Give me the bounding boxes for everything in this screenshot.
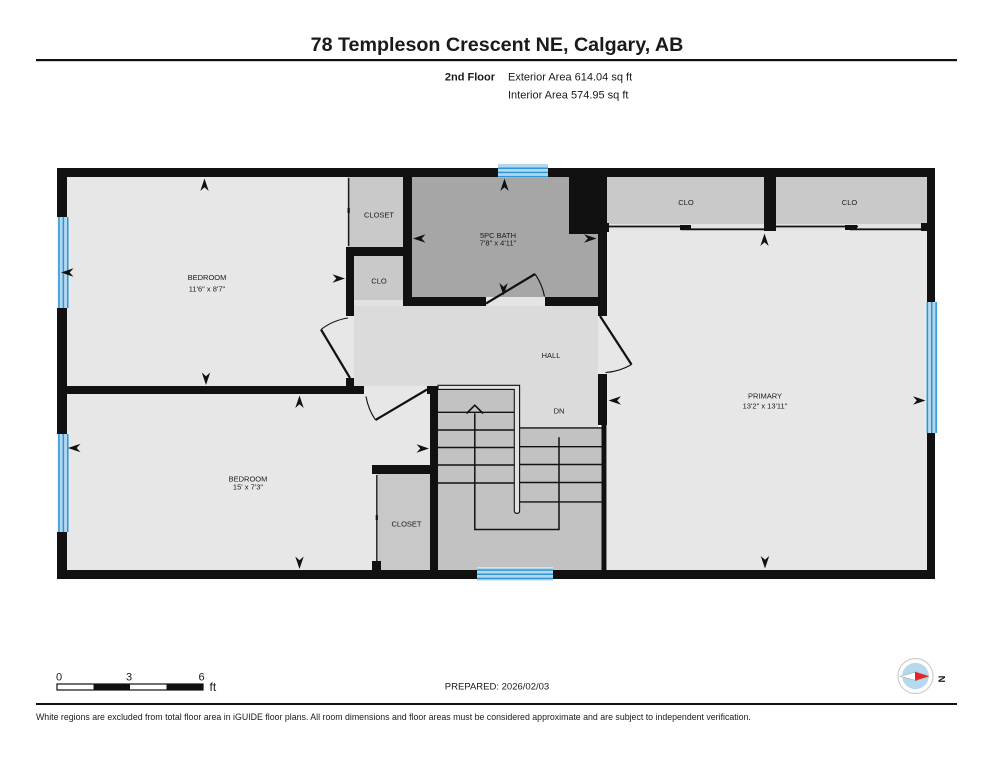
svg-text:ft: ft: [210, 680, 217, 694]
svg-text:CLOSET: CLOSET: [364, 211, 394, 220]
svg-text:7'8" x 4'11": 7'8" x 4'11": [480, 239, 517, 248]
svg-text:PREPARED: 2026/02/03: PREPARED: 2026/02/03: [445, 682, 549, 693]
svg-text:White regions are excluded fro: White regions are excluded from total fl…: [36, 712, 751, 722]
svg-text:DN: DN: [554, 407, 565, 416]
svg-text:PRIMARY: PRIMARY: [748, 392, 782, 401]
svg-text:Exterior Area 614.04 sq ft: Exterior Area 614.04 sq ft: [508, 72, 632, 84]
svg-text:6: 6: [198, 672, 204, 684]
svg-text:CLO: CLO: [371, 277, 387, 286]
svg-text:BEDROOM: BEDROOM: [188, 273, 227, 282]
svg-text:78 Templeson Crescent NE, Calg: 78 Templeson Crescent NE, Calgary, AB: [311, 34, 684, 56]
svg-text:Interior Area 574.95 sq ft: Interior Area 574.95 sq ft: [508, 90, 628, 102]
svg-text:0: 0: [56, 672, 62, 684]
svg-text:15' x 7'3": 15' x 7'3": [233, 483, 263, 492]
svg-text:CLO: CLO: [842, 198, 858, 207]
svg-text:HALL: HALL: [542, 351, 561, 360]
svg-text:N: N: [936, 676, 947, 683]
svg-text:3: 3: [126, 672, 132, 684]
svg-text:CLOSET: CLOSET: [391, 520, 421, 529]
svg-text:CLO: CLO: [678, 198, 694, 207]
svg-text:2nd Floor: 2nd Floor: [445, 72, 496, 84]
svg-text:11'6" x 8'7": 11'6" x 8'7": [189, 285, 226, 294]
svg-text:13'2" x 13'11": 13'2" x 13'11": [743, 402, 788, 411]
